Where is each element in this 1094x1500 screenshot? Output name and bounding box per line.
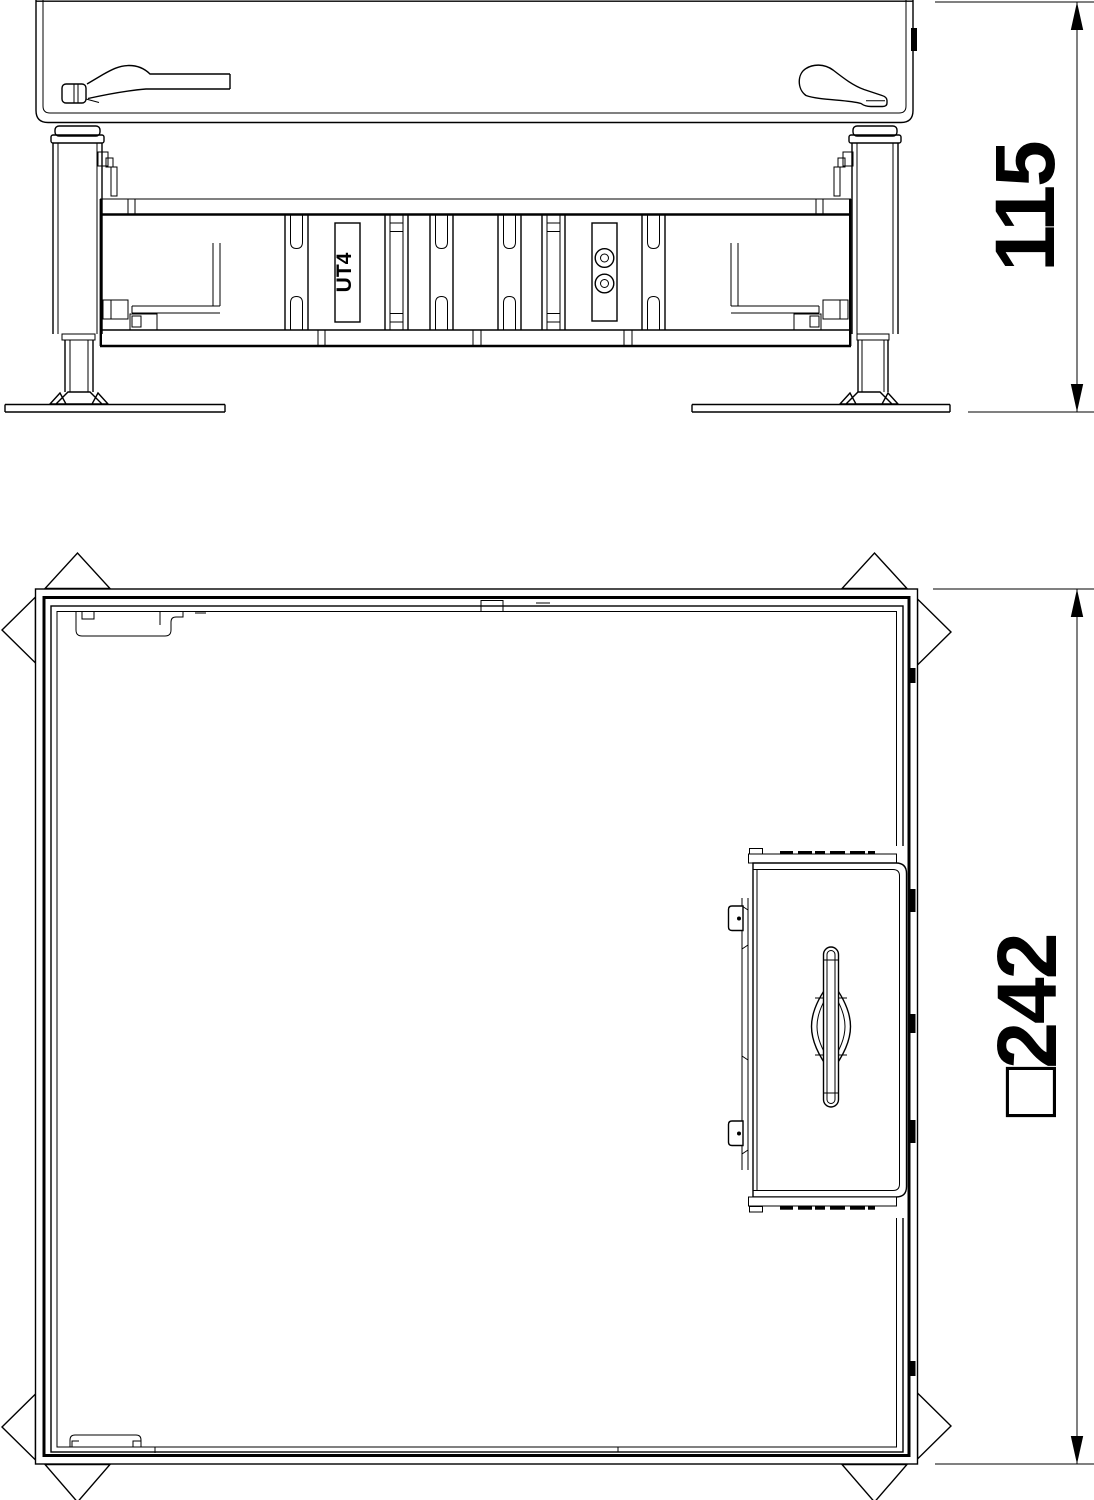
cover-lid bbox=[36, 0, 917, 123]
arrow-up-icon bbox=[1071, 589, 1083, 617]
leveling-leg-left bbox=[5, 126, 225, 412]
ut4-label: UT4 bbox=[333, 252, 356, 292]
dimension-height-115: 115 bbox=[935, 2, 1094, 412]
panel-hinge-tab-bottom bbox=[729, 1121, 744, 1146]
screw-plate bbox=[592, 223, 617, 321]
arrow-down-icon bbox=[1071, 1436, 1083, 1464]
dimension-square-value: □242 bbox=[980, 935, 1074, 1118]
internal-bracket-right bbox=[731, 243, 848, 330]
access-panel bbox=[729, 846, 907, 1218]
device-chassis: UT4 bbox=[98, 152, 853, 346]
foot-left bbox=[5, 392, 225, 412]
cover-edge-notch bbox=[911, 28, 917, 51]
technical-drawing: UT4 bbox=[0, 0, 1094, 1500]
latch-lever-left bbox=[62, 66, 230, 104]
dimension-height-value: 115 bbox=[978, 142, 1072, 272]
panel-hinge-tab-top bbox=[729, 906, 744, 931]
ut4-label-plate: UT4 bbox=[333, 223, 360, 322]
height-adjuster-left bbox=[98, 152, 117, 196]
plan-view: □242 bbox=[2, 553, 1094, 1500]
arrow-down-icon bbox=[1071, 384, 1083, 412]
arrow-up-icon bbox=[1071, 2, 1083, 30]
foot-right bbox=[692, 392, 950, 412]
height-adjuster-right bbox=[834, 152, 853, 196]
side-elevation-view: UT4 bbox=[5, 0, 1094, 412]
internal-bracket-left bbox=[103, 243, 220, 330]
latch-lever-right bbox=[799, 65, 887, 106]
dimension-square-242: □242 bbox=[933, 589, 1094, 1464]
